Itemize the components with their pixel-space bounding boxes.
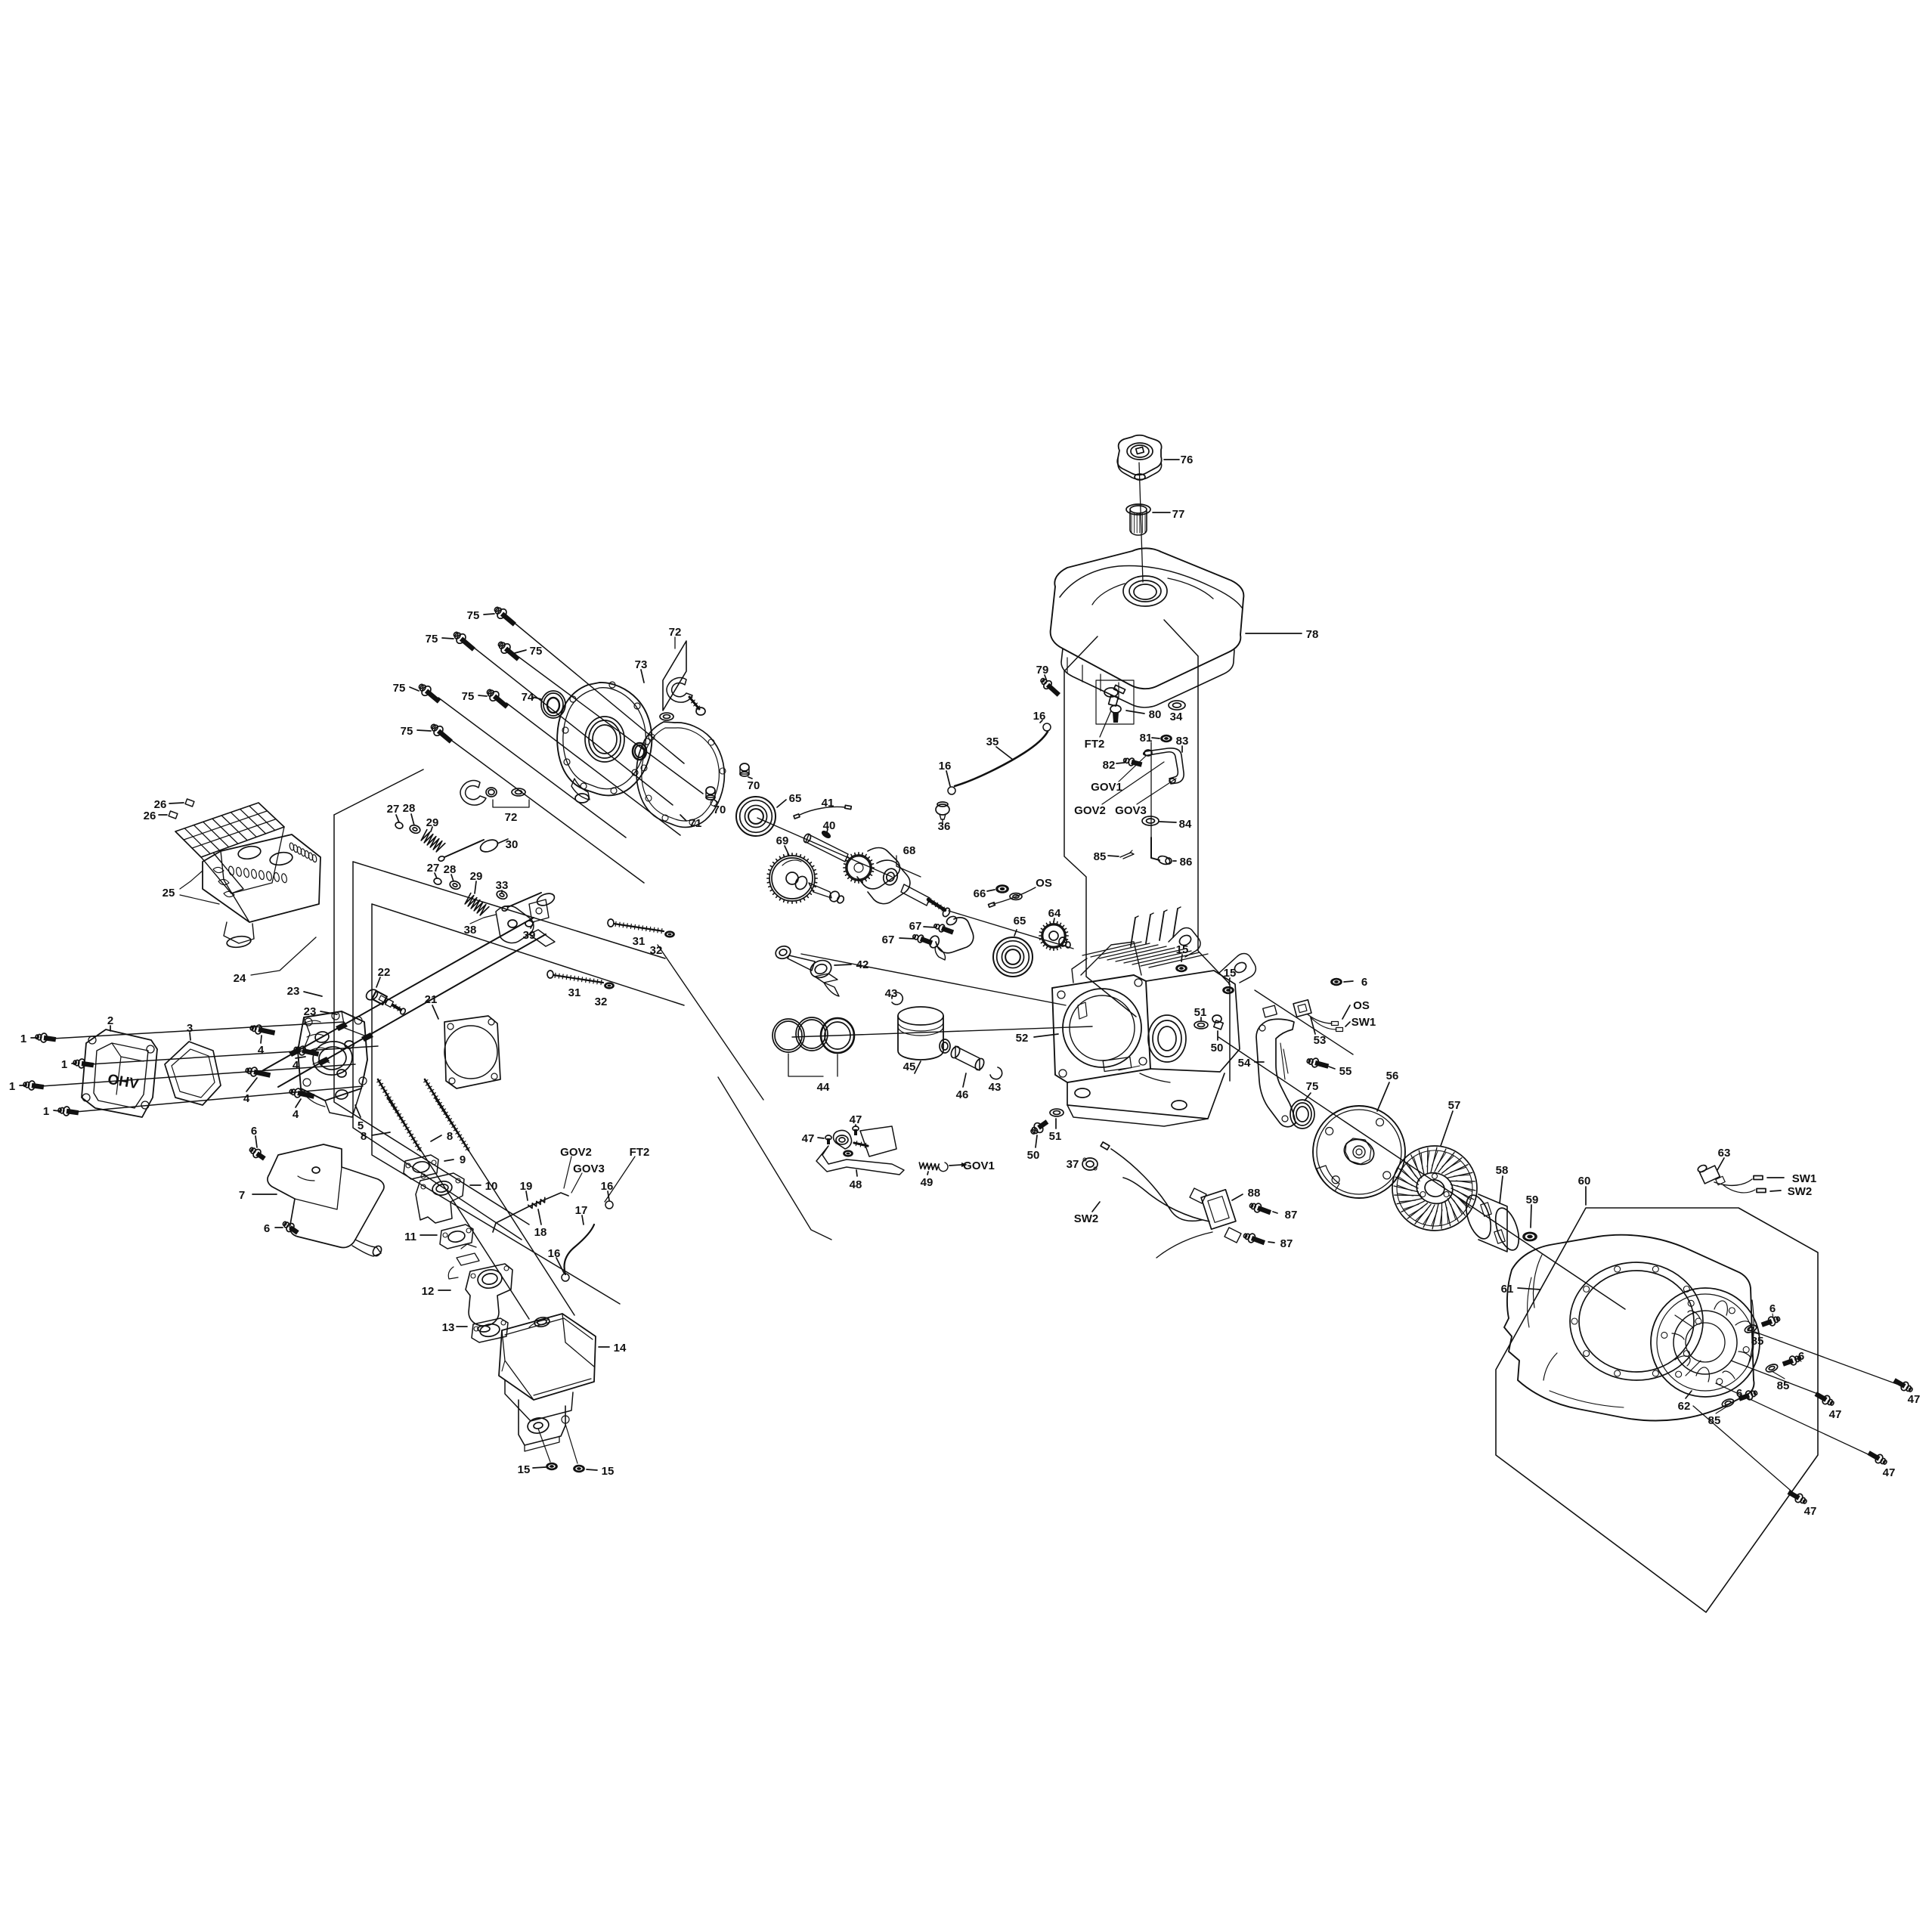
svg-text:75: 75	[393, 682, 406, 695]
svg-text:75: 75	[1306, 1080, 1319, 1093]
svg-text:6: 6	[1361, 976, 1367, 989]
svg-text:47: 47	[850, 1113, 862, 1126]
svg-text:SW2: SW2	[1074, 1212, 1099, 1225]
svg-text:27: 27	[427, 862, 440, 875]
svg-text:75: 75	[426, 633, 438, 646]
svg-text:55: 55	[1339, 1065, 1352, 1078]
svg-text:15: 15	[1224, 967, 1237, 980]
svg-text:47: 47	[1908, 1393, 1921, 1406]
svg-text:42: 42	[856, 958, 869, 971]
svg-text:15: 15	[518, 1463, 531, 1476]
svg-text:29: 29	[470, 870, 483, 883]
svg-text:GOV1: GOV1	[1091, 781, 1122, 794]
svg-text:GOV2: GOV2	[1074, 804, 1106, 817]
svg-text:4: 4	[293, 1108, 299, 1121]
svg-text:36: 36	[938, 820, 951, 833]
svg-text:87: 87	[1280, 1237, 1293, 1250]
svg-text:85: 85	[1094, 850, 1107, 863]
svg-text:OS: OS	[1036, 877, 1052, 890]
svg-text:28: 28	[403, 802, 416, 815]
svg-text:87: 87	[1285, 1209, 1298, 1221]
svg-text:35: 35	[986, 735, 999, 748]
svg-text:FT2: FT2	[630, 1146, 650, 1159]
svg-text:33: 33	[496, 879, 509, 892]
svg-text:81: 81	[1140, 732, 1153, 745]
svg-text:67: 67	[882, 933, 895, 946]
svg-text:88: 88	[1248, 1187, 1261, 1200]
svg-text:29: 29	[426, 816, 439, 829]
svg-text:SW2: SW2	[1788, 1185, 1813, 1198]
svg-text:21: 21	[425, 993, 438, 1006]
svg-text:17: 17	[575, 1204, 588, 1217]
svg-text:12: 12	[422, 1285, 435, 1298]
svg-text:41: 41	[822, 797, 834, 810]
svg-text:48: 48	[850, 1178, 862, 1191]
svg-text:83: 83	[1176, 735, 1189, 748]
svg-text:64: 64	[1048, 907, 1061, 920]
svg-text:51: 51	[1049, 1130, 1062, 1143]
svg-text:27: 27	[387, 803, 400, 816]
svg-text:31: 31	[633, 935, 646, 948]
svg-text:75: 75	[401, 725, 413, 738]
svg-text:34: 34	[1170, 711, 1183, 723]
svg-text:GOV2: GOV2	[560, 1146, 592, 1159]
svg-text:4: 4	[258, 1044, 265, 1057]
svg-text:18: 18	[534, 1226, 547, 1239]
svg-text:47: 47	[802, 1132, 815, 1145]
svg-text:72: 72	[505, 811, 518, 824]
svg-text:8: 8	[447, 1130, 453, 1143]
svg-text:86: 86	[1180, 856, 1193, 868]
svg-text:OS: OS	[1353, 999, 1370, 1012]
svg-text:60: 60	[1578, 1175, 1591, 1187]
svg-text:13: 13	[442, 1321, 455, 1334]
svg-text:46: 46	[956, 1088, 969, 1101]
svg-text:52: 52	[1016, 1032, 1029, 1045]
svg-text:75: 75	[467, 609, 480, 622]
svg-text:77: 77	[1172, 508, 1185, 521]
svg-text:16: 16	[601, 1180, 614, 1193]
svg-text:61: 61	[1501, 1283, 1514, 1296]
svg-text:6: 6	[251, 1125, 257, 1138]
svg-text:47: 47	[1804, 1505, 1817, 1518]
svg-text:25: 25	[163, 887, 175, 899]
svg-text:56: 56	[1386, 1070, 1399, 1082]
svg-text:SW1: SW1	[1351, 1016, 1376, 1029]
svg-text:71: 71	[689, 817, 702, 830]
svg-text:2: 2	[107, 1014, 113, 1027]
svg-text:47: 47	[1829, 1408, 1842, 1421]
svg-text:47: 47	[1883, 1466, 1896, 1479]
svg-text:4: 4	[243, 1092, 250, 1105]
svg-text:16: 16	[1033, 710, 1046, 723]
svg-text:16: 16	[939, 760, 952, 772]
svg-text:84: 84	[1179, 818, 1192, 831]
svg-text:19: 19	[520, 1180, 533, 1193]
svg-text:53: 53	[1314, 1034, 1327, 1047]
svg-text:GOV1: GOV1	[963, 1160, 995, 1172]
svg-text:85: 85	[1751, 1335, 1764, 1348]
svg-text:6: 6	[1769, 1302, 1776, 1315]
svg-text:GOV3: GOV3	[1115, 804, 1147, 817]
svg-text:30: 30	[506, 838, 519, 851]
svg-text:70: 70	[714, 803, 726, 816]
svg-text:85: 85	[1777, 1379, 1790, 1392]
svg-text:32: 32	[595, 995, 608, 1008]
svg-text:40: 40	[823, 819, 836, 832]
svg-text:38: 38	[464, 924, 477, 937]
svg-text:SW1: SW1	[1792, 1172, 1817, 1185]
svg-text:75: 75	[530, 645, 543, 658]
svg-text:9: 9	[460, 1153, 466, 1166]
svg-text:51: 51	[1194, 1006, 1207, 1019]
svg-text:7: 7	[239, 1189, 245, 1202]
svg-text:1: 1	[43, 1105, 49, 1118]
svg-text:GOV3: GOV3	[573, 1163, 605, 1175]
svg-text:3: 3	[187, 1022, 193, 1035]
svg-text:32: 32	[650, 944, 663, 957]
svg-text:43: 43	[885, 987, 898, 1000]
svg-text:6: 6	[264, 1222, 270, 1235]
svg-text:70: 70	[748, 779, 760, 792]
svg-text:57: 57	[1448, 1099, 1461, 1112]
svg-text:28: 28	[444, 863, 457, 876]
svg-text:26: 26	[144, 810, 156, 822]
svg-text:65: 65	[789, 792, 802, 805]
svg-text:78: 78	[1306, 628, 1319, 641]
svg-text:16: 16	[548, 1247, 561, 1260]
svg-text:74: 74	[522, 691, 534, 704]
svg-text:15: 15	[1176, 943, 1189, 956]
svg-text:39: 39	[523, 929, 536, 942]
svg-text:80: 80	[1149, 708, 1162, 721]
svg-text:1: 1	[20, 1033, 26, 1045]
svg-text:76: 76	[1181, 454, 1194, 466]
svg-text:69: 69	[776, 834, 789, 847]
svg-text:50: 50	[1027, 1149, 1040, 1162]
svg-text:FT2: FT2	[1085, 738, 1105, 751]
svg-text:11: 11	[404, 1231, 416, 1243]
svg-text:54: 54	[1238, 1057, 1251, 1070]
svg-text:1: 1	[61, 1058, 67, 1071]
svg-text:85: 85	[1708, 1414, 1721, 1427]
svg-text:73: 73	[635, 658, 648, 671]
svg-text:62: 62	[1678, 1400, 1691, 1413]
svg-text:23: 23	[287, 985, 300, 998]
svg-text:43: 43	[989, 1081, 1002, 1094]
svg-text:37: 37	[1067, 1158, 1079, 1171]
svg-text:63: 63	[1718, 1147, 1731, 1160]
svg-text:82: 82	[1103, 759, 1116, 772]
svg-text:58: 58	[1496, 1164, 1509, 1177]
svg-text:49: 49	[921, 1176, 933, 1189]
svg-text:22: 22	[378, 966, 391, 979]
svg-text:59: 59	[1526, 1194, 1539, 1206]
svg-text:1: 1	[9, 1080, 15, 1093]
svg-text:75: 75	[462, 690, 475, 703]
svg-text:79: 79	[1036, 664, 1049, 677]
svg-text:50: 50	[1211, 1042, 1224, 1054]
svg-text:68: 68	[903, 844, 916, 857]
svg-text:31: 31	[568, 986, 581, 999]
svg-text:15: 15	[602, 1465, 615, 1478]
svg-text:44: 44	[817, 1081, 830, 1094]
svg-text:24: 24	[234, 972, 246, 985]
svg-text:8: 8	[361, 1130, 367, 1143]
svg-text:66: 66	[974, 887, 986, 900]
svg-text:65: 65	[1014, 915, 1026, 927]
svg-text:10: 10	[485, 1180, 498, 1193]
svg-text:67: 67	[909, 920, 922, 933]
svg-text:14: 14	[614, 1342, 627, 1355]
svg-text:45: 45	[903, 1060, 916, 1073]
